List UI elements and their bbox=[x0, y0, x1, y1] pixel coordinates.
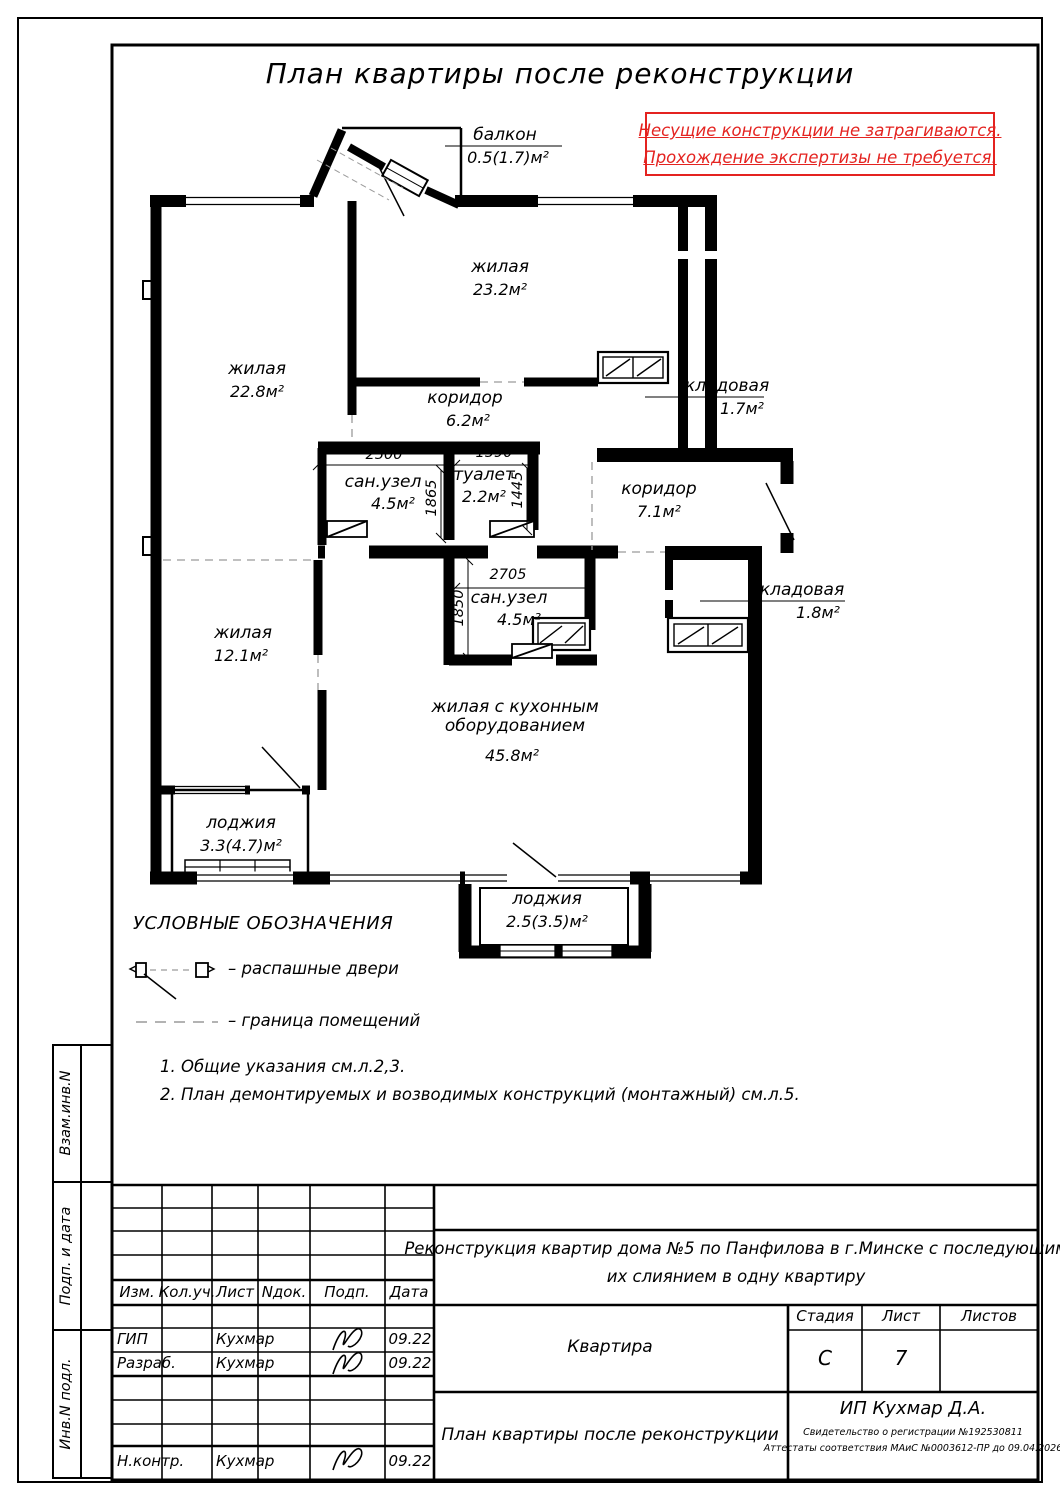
tb-col-podp: Подп. bbox=[324, 1284, 369, 1301]
tb-sheet-value: 7 bbox=[895, 1347, 908, 1369]
room-label-zhilaya-12: жилая bbox=[214, 624, 272, 643]
tb-role-nkontr: Н.контр. bbox=[117, 1453, 184, 1470]
tb-role-gip: ГИП bbox=[117, 1331, 148, 1348]
tb-col-list: Лист bbox=[216, 1284, 254, 1301]
room-label-lodzhiya-1: лоджия bbox=[206, 814, 276, 833]
room-area-kladovaya-18: 1.8м² bbox=[796, 604, 840, 622]
tb-project-line2: их слиянием в одну квартиру bbox=[607, 1268, 865, 1286]
tb-firm-cert2: Аттестаты соответствия МАиС №0003612-ПР … bbox=[764, 1444, 1060, 1455]
side-label-inv: Инв.N подл. bbox=[58, 1334, 76, 1474]
dim-2500: 2500 bbox=[366, 447, 403, 463]
warning-line-1: Несущие конструкции не затрагиваются. bbox=[639, 121, 1002, 140]
room-area-kladovaya-17: 1.7м² bbox=[720, 400, 764, 418]
room-area-balkon: 0.5(1.7)м² bbox=[467, 149, 549, 167]
drawing-sheet: { "sheet": { "title": "План квартиры пос… bbox=[0, 0, 1060, 1500]
dim-2705: 2705 bbox=[490, 567, 527, 583]
legend-item-boundary: – граница помещений bbox=[228, 1012, 420, 1030]
tb-date-razrab: 09.22 bbox=[389, 1355, 432, 1372]
legend-title: УСЛОВНЫЕ ОБОЗНАЧЕНИЯ bbox=[133, 914, 393, 934]
room-label-zhilaya-22: жилая bbox=[228, 360, 286, 379]
room-label-tualet: туалет bbox=[453, 466, 515, 485]
room-area-koridor-71: 7.1м² bbox=[637, 503, 681, 521]
tb-project-line1: Реконструкция квартир дома №5 по Панфило… bbox=[404, 1240, 1060, 1258]
tb-name-nkontr: Кухмар bbox=[216, 1453, 274, 1470]
tb-doc-title: План квартиры после реконструкции bbox=[441, 1426, 778, 1445]
room-label-sanuzel-2: сан.узел bbox=[471, 589, 548, 608]
tb-sheet-label: Лист bbox=[882, 1308, 920, 1325]
dim-1590: 1590 bbox=[476, 445, 513, 461]
room-label-kladovaya-17: кладовая bbox=[685, 377, 769, 396]
tb-col-izm: Изм. bbox=[119, 1284, 154, 1301]
legend-item-doors: – распашные двери bbox=[228, 960, 399, 978]
tb-firm-name: ИП Кухмар Д.А. bbox=[840, 1399, 986, 1419]
tb-col-ndok: Nдок. bbox=[262, 1284, 307, 1301]
room-area-sanuzel-1: 4.5м² bbox=[371, 495, 415, 513]
room-area-sanuzel-2: 4.5м² bbox=[497, 611, 541, 629]
room-label-lodzhiya-2: лоджия bbox=[512, 890, 582, 909]
side-label-podp: Подп. и дата bbox=[58, 1186, 76, 1326]
note-2: 2. План демонтируемых и возводимых конст… bbox=[160, 1086, 800, 1104]
room-area-koridor-62: 6.2м² bbox=[446, 412, 490, 430]
tb-stage-value: С bbox=[818, 1347, 832, 1369]
tb-firm-cert1: Свидетельство о регистрации №192530811 bbox=[803, 1428, 1023, 1439]
tb-object-name: Квартира bbox=[567, 1338, 652, 1357]
room-area-zhilaya-22: 22.8м² bbox=[230, 383, 284, 401]
room-label-zhilaya-kitchen: жилая с кухонным оборудованием bbox=[420, 698, 610, 736]
room-area-zhilaya-23: 23.2м² bbox=[473, 281, 527, 299]
room-label-koridor-71: коридор bbox=[621, 480, 696, 499]
room-label-sanuzel-1: сан.узел bbox=[345, 473, 422, 492]
dim-1850: 1850 bbox=[451, 590, 467, 627]
room-area-zhilaya-kitchen: 45.8м² bbox=[485, 747, 539, 765]
room-area-zhilaya-12: 12.1м² bbox=[214, 647, 268, 665]
tb-sheets-label: Листов bbox=[961, 1308, 1017, 1325]
tb-name-gip: Кухмар bbox=[216, 1331, 274, 1348]
room-area-lodzhiya-1: 3.3(4.7)м² bbox=[200, 837, 282, 855]
tb-date-nkontr: 09.22 bbox=[389, 1453, 432, 1470]
dim-1865: 1865 bbox=[424, 480, 440, 517]
tb-date-gip: 09.22 bbox=[389, 1331, 432, 1348]
room-label-balkon: балкон bbox=[473, 126, 537, 145]
room-label-koridor-62: коридор bbox=[427, 389, 502, 408]
warning-box: Несущие конструкции не затрагиваются. Пр… bbox=[645, 112, 995, 176]
room-area-lodzhiya-2: 2.5(3.5)м² bbox=[506, 913, 588, 931]
room-area-tualet: 2.2м² bbox=[462, 488, 506, 506]
tb-role-razrab: Разраб. bbox=[117, 1355, 176, 1372]
warning-line-2: Прохождение экспертизы не требуется. bbox=[643, 148, 996, 167]
side-label-vzam: Взам.инв.N bbox=[58, 1043, 76, 1183]
note-1: 1. Общие указания см.л.2,3. bbox=[160, 1058, 405, 1076]
tb-stage-label: Стадия bbox=[796, 1308, 854, 1325]
sheet-title: План квартиры после реконструкции bbox=[266, 58, 855, 89]
tb-name-razrab: Кухмар bbox=[216, 1355, 274, 1372]
dim-1445: 1445 bbox=[510, 472, 526, 509]
room-label-kladovaya-18: кладовая bbox=[760, 581, 844, 600]
tb-col-data: Дата bbox=[390, 1284, 429, 1301]
tb-col-koluch: Кол.уч. bbox=[159, 1284, 216, 1301]
room-label-zhilaya-23: жилая bbox=[471, 258, 529, 277]
